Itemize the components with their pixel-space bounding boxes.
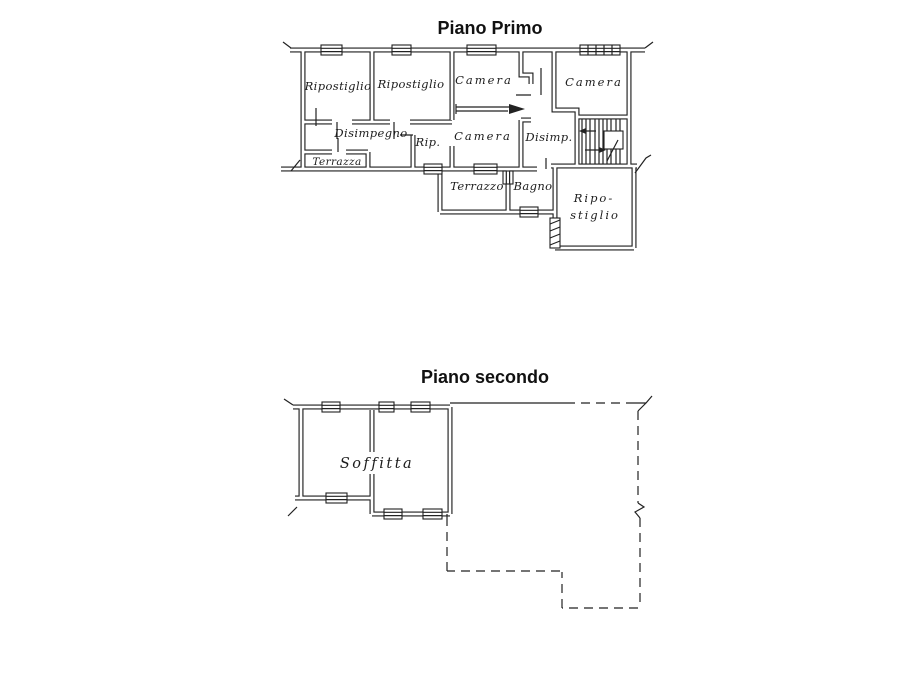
room-label-bagno: Bagno: [513, 179, 553, 193]
floor-plans-svg: Piano Primo Ripostiglio Ripostiglio Came…: [0, 0, 923, 682]
piano-primo-title: Piano Primo: [437, 18, 542, 38]
room-label-terrazza: Terrazza: [312, 156, 361, 168]
partition-arrow: [456, 104, 525, 114]
dashed-outline: [447, 403, 640, 608]
room-label-disimp: Disimp.: [524, 130, 572, 144]
window-icon: [467, 45, 496, 55]
break-squiggle: [635, 503, 644, 518]
room-label-camera-top-mid: Camera: [455, 73, 513, 87]
stair-landing: [604, 131, 623, 149]
piano-secondo-plan: Piano secondo Soffitta: [284, 367, 652, 608]
window-icon: [503, 171, 513, 184]
corner-hook: [632, 396, 652, 411]
window-icon: [321, 45, 342, 55]
window-icon: [424, 164, 442, 174]
window-icon: [580, 45, 620, 55]
room-label-ripostiglio-2: Ripostiglio: [377, 77, 445, 91]
window-icon: [384, 509, 402, 519]
room-label-rip: Rip.: [415, 135, 441, 149]
room-label-ripostiglio-low-2: stiglio: [570, 208, 620, 222]
window-icon: [423, 509, 442, 519]
window-icon: [379, 402, 394, 412]
window-icon: [392, 45, 411, 55]
window-icon: [326, 493, 347, 503]
piano-secondo-title: Piano secondo: [421, 367, 549, 387]
window-icon: [520, 207, 538, 217]
staircase: [579, 119, 623, 164]
room-label-ripostiglio-1: Ripostiglio: [304, 79, 372, 93]
window-icon: [474, 164, 497, 174]
room-label-soffitta: Soffitta: [340, 456, 414, 472]
piano-primo-plan: Piano Primo Ripostiglio Ripostiglio Came…: [281, 18, 653, 248]
window-icon: [322, 402, 340, 412]
scanned-floorplan-page: Piano Primo Ripostiglio Ripostiglio Came…: [0, 0, 923, 682]
room-label-camera-mid: Camera: [454, 129, 512, 143]
room-label-camera-top-right: Camera: [565, 75, 623, 89]
room-label-ripostiglio-low-1: Ripo-: [573, 191, 615, 205]
room-label-terrazzo: Terrazzo: [450, 179, 504, 193]
hatched-door-block: [550, 218, 560, 248]
window-icon: [411, 402, 430, 412]
room-label-disimpegno: Disimpegno: [333, 126, 407, 140]
